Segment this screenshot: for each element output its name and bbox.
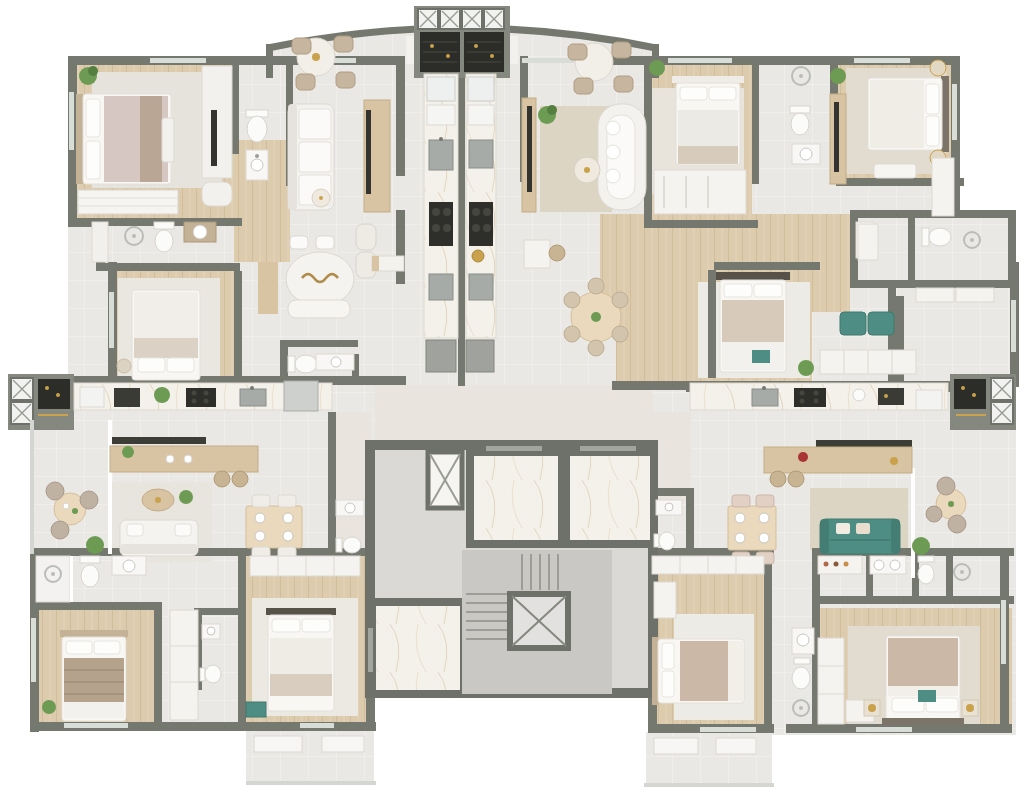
b-kettle: [472, 250, 484, 262]
a-bed-pillow: [86, 141, 100, 179]
b-ottoman: [868, 312, 894, 335]
a-dining-chair: [316, 236, 334, 249]
d-mbed-teal-throw: [918, 690, 936, 702]
b-bed3-pillow: [724, 284, 752, 297]
c-vanity-basin: [123, 560, 135, 572]
b-cooktop: [469, 202, 493, 246]
terrace-chair: [334, 36, 353, 52]
kitchen-center-wall: [458, 56, 465, 386]
d-wardrobe-l: [654, 582, 676, 618]
c-bed4-pillow: [272, 619, 300, 632]
a-wardrobe-tv: [211, 110, 217, 166]
a-plant: [88, 66, 98, 76]
a-kitchen-sink: [429, 140, 453, 170]
d-sofa-pillow: [836, 523, 850, 534]
d-balcony-bench: [716, 738, 756, 754]
b-mbath-toilet: [922, 228, 929, 246]
terrace-table-decor: [312, 53, 320, 61]
b-toilet: [790, 106, 810, 113]
c-powder-toilet: [343, 537, 361, 553]
b-dining-plant: [591, 312, 601, 322]
d-mbed-duvet: [888, 638, 958, 688]
window: [668, 58, 732, 63]
terrace-chair: [612, 42, 631, 58]
b-laundry-sink: [858, 224, 878, 260]
d-bedl-pillow: [662, 643, 674, 669]
d-shoes: [844, 562, 849, 567]
b-master-tv: [834, 102, 839, 172]
d-plate: [759, 533, 769, 543]
c-plate: [283, 513, 293, 523]
bbq-grill: [954, 379, 986, 409]
c-closet4: [250, 556, 360, 576]
d-sofa-arm: [891, 519, 900, 554]
terrace-chair: [568, 44, 587, 60]
elevator-3: [372, 602, 464, 694]
d-nightstand-lamp: [868, 704, 876, 712]
c-bed4-pillow: [302, 619, 330, 632]
b-dining-chair: [612, 326, 628, 342]
a-powder-basin: [331, 357, 341, 367]
b-wall: [708, 270, 716, 378]
a-closet-desk: [202, 182, 232, 206]
d-dining-table: [728, 506, 776, 550]
balcony-rail: [30, 420, 34, 554]
c-shower: [36, 556, 70, 602]
c-bed3-plant: [42, 700, 56, 714]
c-bar-bowl: [166, 455, 174, 463]
c-bar-bowl: [184, 455, 192, 463]
b-wall: [908, 210, 915, 286]
b-bed3-plant: [798, 360, 814, 376]
balcony-rail: [644, 783, 774, 787]
c-burner: [192, 399, 197, 404]
c-bed4-headboard: [266, 608, 336, 615]
b-wall: [850, 280, 1012, 288]
d-bedl-pillow: [662, 671, 674, 697]
d-wall: [764, 554, 772, 732]
window: [64, 723, 128, 728]
b-bedc-pillow: [709, 87, 736, 100]
d-shoes: [824, 562, 829, 567]
b-dishwasher: [466, 340, 494, 372]
d-plant: [912, 537, 930, 555]
a-console-wood: [372, 256, 379, 271]
elevator-door: [368, 628, 373, 672]
c-balcony-bench: [322, 736, 364, 752]
c-bar-stool: [232, 471, 248, 487]
c-kitchen-plant: [154, 387, 170, 403]
b-bedc-duvet: [678, 110, 738, 148]
c-burner: [204, 399, 209, 404]
b-master-duvet: [870, 80, 924, 148]
b-tv: [527, 106, 532, 192]
d-dining-chair: [756, 495, 774, 507]
d-burner: [800, 399, 805, 404]
a-dining-table: [286, 252, 354, 306]
a-dining-banquette: [258, 262, 278, 314]
elevator-door: [580, 446, 636, 451]
d-mtoilet: [918, 564, 934, 584]
a-toilet: [247, 116, 267, 142]
b-master-bench: [874, 164, 916, 178]
b-shower-head: [799, 74, 803, 78]
a-bed-pillow: [86, 99, 100, 137]
a-dining-chair: [356, 224, 376, 250]
b-plant3: [830, 68, 846, 84]
a-kitchen-cabinet: [427, 105, 455, 125]
a-wall: [234, 271, 242, 383]
terrace-chair: [336, 72, 355, 88]
window: [1001, 600, 1006, 664]
d-burner: [814, 391, 819, 396]
c-fridge: [284, 381, 318, 411]
d-mcloset: [818, 638, 844, 724]
terrace-chair: [296, 74, 315, 90]
a-tv: [366, 110, 371, 194]
b-bedc-blanket: [678, 146, 738, 164]
d-sofa-pillow: [856, 523, 870, 534]
d-bedl-headboard: [652, 637, 658, 705]
d-powder-toilet: [654, 534, 659, 547]
b-coffee-decor: [584, 167, 590, 173]
a-powder-toilet: [288, 356, 295, 372]
d-dining-chair: [732, 495, 750, 507]
balcony-glass: [911, 468, 915, 578]
b-bar-stool: [549, 245, 565, 261]
b-wall: [714, 262, 820, 270]
d-kitchen-faucet: [762, 386, 766, 390]
c-bed3-headboard: [60, 630, 128, 637]
c-burner: [204, 391, 209, 396]
d-kitchen-sink: [752, 389, 778, 406]
b-dining-chair: [612, 292, 628, 308]
c-wall: [238, 548, 246, 728]
a-bed2-pillow: [167, 358, 194, 372]
d-powder-toilet: [659, 532, 675, 550]
c-powder-toilet: [336, 538, 342, 552]
bbq-coals: [972, 393, 976, 397]
c-sofa-back: [120, 544, 198, 554]
a-burner: [432, 208, 440, 216]
b-burner: [483, 208, 491, 216]
d-shoes: [834, 562, 839, 567]
b-dining-chair: [564, 292, 580, 308]
a-burner: [432, 224, 440, 232]
c-balcony-decor: [72, 508, 78, 514]
c-balcony-chair: [80, 491, 98, 509]
d-bedl-sheet: [728, 641, 744, 701]
c-plate: [283, 531, 293, 541]
bbq-coals: [56, 393, 60, 397]
a-cooktop: [429, 202, 453, 246]
b-mbath-toilet: [929, 228, 951, 246]
elevator-door: [486, 446, 542, 451]
bbq-coals: [961, 386, 965, 390]
d-bar: [764, 447, 912, 473]
a-bed-bench: [162, 118, 174, 162]
d-mbed-headboard: [882, 718, 964, 725]
b-bedc-pillow: [680, 87, 707, 100]
a-bed2-blanket: [134, 338, 198, 358]
elevator-1: [470, 452, 562, 544]
a-wall: [280, 340, 358, 347]
b-burner: [472, 224, 480, 232]
a-kitchen-sink2: [429, 274, 453, 300]
d-bath-toilet: [794, 658, 810, 664]
a-fridge: [427, 77, 455, 101]
bbq-coals: [430, 44, 434, 48]
c-plate: [255, 531, 265, 541]
d-mshower: [960, 570, 964, 574]
d-mtoilet: [918, 556, 934, 562]
d-plate: [759, 513, 769, 523]
b-sofa-pillow: [606, 121, 620, 135]
b-bed3-teal-throw: [752, 350, 770, 363]
d-balcony-chair: [926, 506, 942, 522]
terrace-chair: [292, 38, 311, 54]
a-kitchen-faucet: [439, 137, 443, 141]
d-powder-basin: [665, 503, 673, 511]
c-balcony-plant: [86, 536, 104, 554]
terrace-chair: [574, 78, 593, 94]
elevator-2: [566, 452, 654, 544]
d-bar-stool: [788, 471, 804, 487]
balcony-glass: [108, 420, 112, 554]
b-bedc-headboard: [672, 76, 744, 83]
c-shower-glass: [70, 556, 73, 602]
a-side-table-decor: [319, 196, 323, 200]
c-plate: [255, 513, 265, 523]
hall-top-floor: [375, 385, 653, 443]
b-kitchen-sink2: [469, 274, 493, 300]
a-wall: [396, 56, 405, 176]
d-mvanity-basin: [874, 560, 884, 570]
b-kitchen-cabinet: [468, 105, 494, 125]
b-burner: [472, 208, 480, 216]
window: [109, 292, 114, 348]
d-bar-flowers: [798, 452, 808, 462]
c-toilet: [80, 556, 100, 563]
b-dresser: [932, 158, 954, 216]
c-balcony-decor: [63, 503, 69, 509]
a-burner: [443, 224, 451, 232]
d-bath-shower: [799, 706, 803, 710]
a-wall: [232, 56, 239, 154]
d-wall: [812, 596, 1014, 604]
b-closetroom-cabinet: [956, 288, 994, 302]
b-bed3-headboard: [716, 272, 790, 280]
a-sofa-cushion: [299, 109, 331, 139]
window: [300, 723, 334, 728]
c-shower-head: [51, 572, 55, 576]
b-plant2: [649, 60, 665, 76]
b-sofa-pillow: [606, 145, 620, 159]
c-dining-chair: [278, 495, 296, 507]
c-bed3-pillow: [66, 641, 92, 654]
b-mbath-shower: [970, 238, 974, 242]
c-balcony-chair: [46, 482, 64, 500]
a-powder-toilet: [295, 355, 317, 373]
d-plate: [735, 533, 745, 543]
a-sofa-cushion: [299, 142, 331, 172]
c-dining-table: [246, 506, 302, 548]
window: [1011, 300, 1016, 352]
c-wall: [194, 608, 246, 615]
a-shower: [92, 222, 108, 262]
bbq-coals: [446, 54, 450, 58]
bbq-coals: [474, 44, 478, 48]
a-shower-head: [132, 234, 136, 238]
c-powder2-toilet: [200, 668, 205, 681]
window: [31, 618, 36, 682]
b-closetroom-cabinet: [916, 288, 954, 302]
d-balcony-bench: [654, 738, 698, 754]
b-bed3-duvet: [722, 300, 784, 344]
bbq-coals: [490, 54, 494, 58]
d-plate: [735, 513, 745, 523]
window: [856, 727, 912, 732]
floor-plan-stage: [0, 0, 1024, 793]
c-wall: [328, 412, 336, 558]
c-cooktop: [186, 388, 216, 407]
d-oven-knob: [884, 394, 888, 398]
c-kitchen-cabinet: [80, 387, 104, 407]
b-fridge: [468, 77, 494, 101]
c-wardrobe: [170, 610, 198, 720]
a-bed-headboard: [76, 94, 83, 184]
c-bar-plant: [122, 446, 134, 458]
d-balcony-decor: [948, 501, 954, 507]
a-dining-chair: [290, 236, 308, 249]
b-dining-chair: [588, 340, 604, 356]
d-kettle: [853, 389, 865, 401]
c-balcony-chair: [51, 521, 69, 539]
a-bed-throw: [140, 96, 162, 182]
a-toilet2: [155, 230, 173, 252]
c-burner: [192, 391, 197, 396]
window: [69, 92, 74, 150]
grill-side-shelf: [510, 36, 518, 64]
d-nightstand-lamp: [966, 704, 974, 712]
a-vanity-faucet: [255, 154, 259, 158]
d-bath-toilet: [792, 667, 810, 689]
a-bed2-lamp: [117, 359, 131, 373]
d-wall: [946, 556, 953, 596]
d-kitchen-cabinet: [916, 390, 942, 410]
a-dishwasher: [426, 340, 456, 372]
d-burner: [800, 391, 805, 396]
b-master-lamp: [930, 60, 946, 76]
b-wall: [752, 56, 759, 184]
a-vanity2-basin: [193, 225, 207, 239]
c-dining-chair: [252, 495, 270, 507]
b-plant: [547, 105, 557, 115]
d-mvanity-basin: [890, 560, 900, 570]
window: [700, 727, 756, 732]
c-tv-shelf: [112, 437, 206, 444]
a-dresser: [78, 190, 178, 214]
c-kitchen-faucet: [250, 386, 254, 390]
d-bar-stool: [770, 471, 786, 487]
c-powder2-toilet: [205, 665, 221, 683]
a-dining-bench: [288, 300, 350, 318]
c-bed3-sheet: [64, 702, 124, 718]
c-sofa-pillow: [127, 524, 143, 536]
d-bar-dish: [890, 457, 898, 465]
c-bed3-pillow: [94, 641, 120, 654]
floor-plan-canvas: [0, 0, 1024, 793]
c-bed4-teal-bench: [246, 702, 266, 717]
window: [854, 58, 910, 63]
b-sofa-pillow: [606, 169, 620, 183]
b-toilet: [791, 113, 809, 135]
b-kitchen-sink: [469, 140, 493, 168]
c-wall: [30, 722, 246, 731]
b-wall: [646, 220, 758, 228]
d-cooktop: [794, 388, 826, 407]
d-sofa-arm: [820, 519, 829, 554]
c-powder2-basin: [207, 627, 215, 635]
d-balcony-chair: [948, 515, 966, 533]
c-wall: [154, 602, 162, 730]
a-bed2-pillow: [138, 358, 165, 372]
c-coffee-decor: [155, 497, 161, 503]
window: [150, 58, 206, 63]
b-bar: [524, 240, 550, 268]
a-toilet2: [154, 222, 174, 229]
grill-side-shelf: [406, 36, 414, 64]
a-wall: [96, 263, 240, 271]
b-wall: [850, 210, 1012, 218]
b-dining-chair: [588, 278, 604, 294]
b-wardrobe: [654, 170, 746, 214]
c-kitchen-sink: [240, 389, 266, 406]
b-vanity-basin: [800, 148, 812, 160]
b-master-pillow: [926, 84, 939, 114]
c-balcony-bench: [254, 736, 302, 752]
a-sofa-back: [288, 104, 297, 210]
b-dining-chair: [564, 326, 580, 342]
c-sofa-pillow: [175, 524, 191, 536]
d-balcony-chair: [937, 477, 955, 495]
c-bar-stool: [214, 471, 230, 487]
b-master-pillow: [926, 116, 939, 146]
c-bed4-blanket: [270, 674, 332, 696]
b-burner: [483, 224, 491, 232]
bbq-coals: [45, 386, 49, 390]
a-vanity-basin: [251, 159, 263, 171]
d-burner: [814, 399, 819, 404]
c-toilet: [81, 565, 99, 587]
c-oven: [114, 388, 140, 407]
bbq-grill: [38, 379, 70, 409]
c-powder-basin: [345, 503, 355, 513]
a-wall: [396, 210, 405, 284]
b-bed3-pillow: [754, 284, 782, 297]
window: [952, 84, 957, 140]
d-oven: [878, 388, 904, 405]
b-ottoman: [840, 312, 866, 335]
d-bath-basin: [797, 634, 809, 646]
a-burner: [443, 208, 451, 216]
balcony-rail: [246, 781, 376, 785]
c-balcony-floor: [33, 420, 111, 556]
c-wall: [30, 602, 162, 610]
terrace-chair: [614, 76, 633, 92]
c-coffee-plant: [179, 490, 193, 504]
